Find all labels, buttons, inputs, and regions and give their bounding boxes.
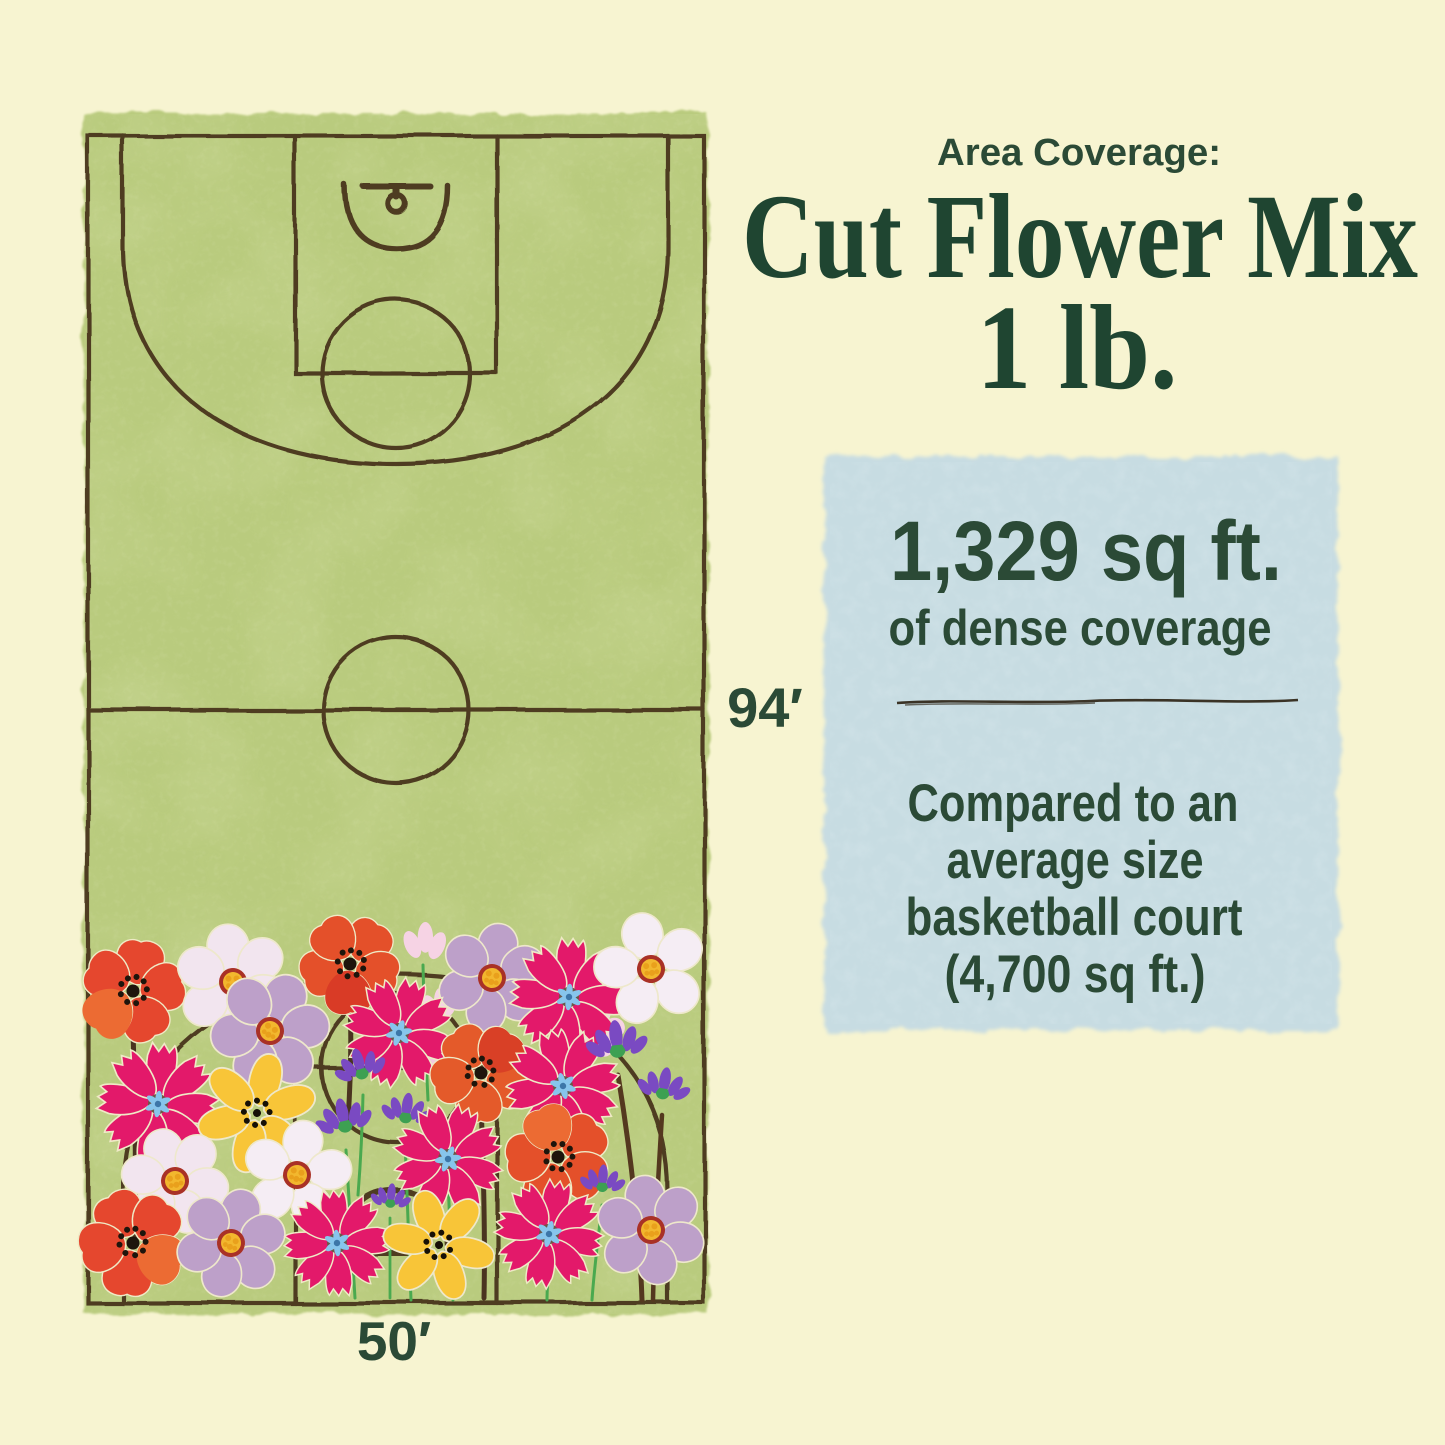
svg-text:(4,700 sq ft.): (4,700 sq ft.) (945, 945, 1206, 1004)
svg-text:Compared to an: Compared to an (908, 774, 1239, 833)
svg-text:average size: average size (947, 831, 1204, 890)
svg-text:50′: 50′ (357, 1310, 431, 1372)
svg-text:Area Coverage:: Area Coverage: (937, 132, 1221, 174)
svg-text:1 lb.: 1 lb. (977, 281, 1178, 415)
svg-text:1,329 sq ft.: 1,329 sq ft. (890, 504, 1282, 598)
svg-text:94′: 94′ (727, 676, 803, 739)
svg-text:of dense coverage: of dense coverage (889, 600, 1272, 656)
svg-text:basketball court: basketball court (906, 888, 1243, 947)
